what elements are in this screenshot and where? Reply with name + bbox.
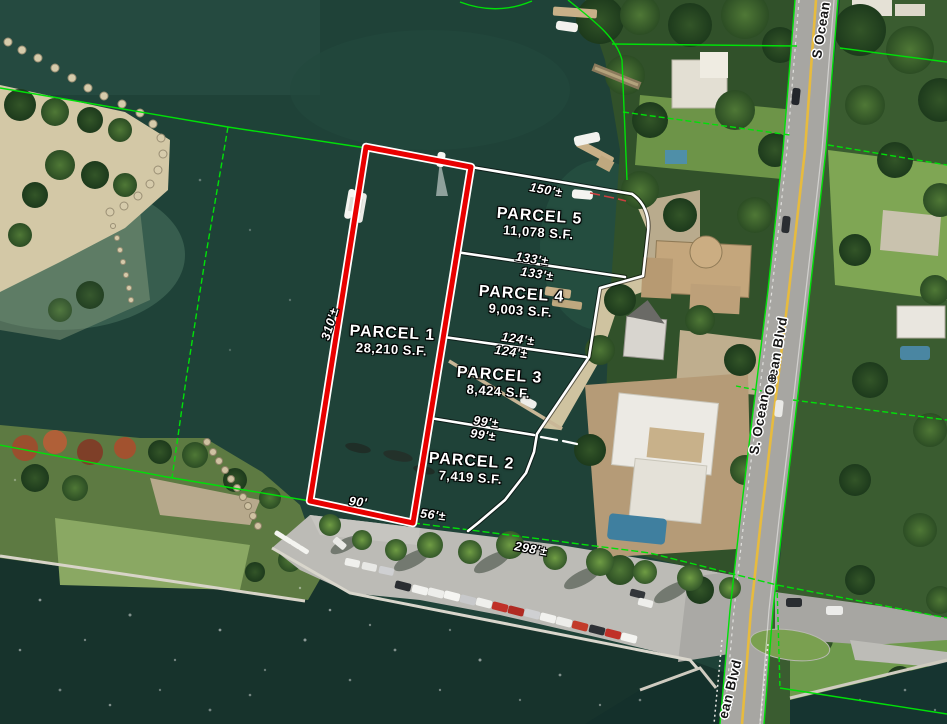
parcel-5-label: PARCEL 5 11,078 S.F.: [495, 206, 583, 242]
dim-56: 56'±: [419, 506, 446, 523]
parcel-1-label: PARCEL 1 28,210 S.F.: [348, 324, 435, 359]
aerial-imagery: [0, 0, 947, 724]
aerial-parcel-map: PARCEL 1 28,210 S.F. PARCEL 5 11,078 S.F…: [0, 0, 947, 724]
parcel-4-label: PARCEL 4 9,003 S.F.: [477, 284, 565, 320]
benchmark-icon: ⊕: [767, 371, 777, 385]
parcel-2-label: PARCEL 2 7,419 S.F.: [427, 451, 515, 487]
parcel-3-label: PARCEL 3 8,424 S.F.: [455, 365, 543, 401]
dim-90: 90': [348, 494, 368, 510]
